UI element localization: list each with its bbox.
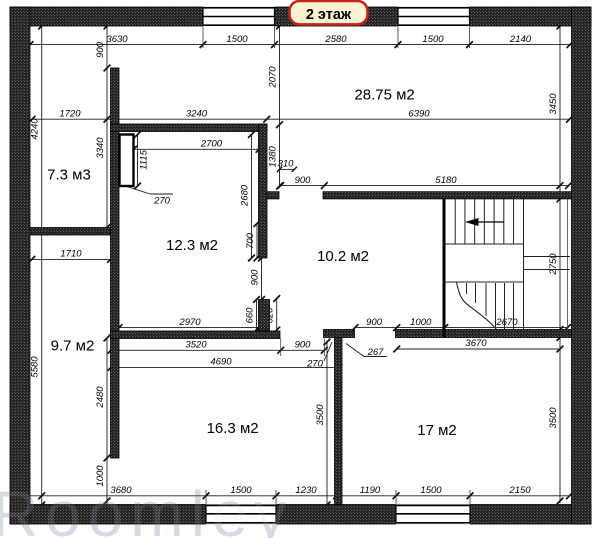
svg-text:310: 310	[278, 158, 295, 169]
svg-text:2480: 2480	[95, 386, 106, 409]
svg-text:1720: 1720	[59, 108, 81, 119]
svg-text:12.3 м2: 12.3 м2	[166, 237, 218, 254]
svg-text:17 м2: 17 м2	[417, 422, 457, 439]
svg-text:3450: 3450	[548, 93, 559, 115]
svg-text:3500: 3500	[548, 407, 559, 429]
svg-text:660: 660	[245, 307, 256, 324]
svg-text:3500: 3500	[315, 404, 326, 426]
svg-text:3340: 3340	[95, 137, 106, 159]
svg-text:2680: 2680	[240, 184, 251, 207]
svg-text:3670: 3670	[465, 338, 487, 349]
svg-text:900: 900	[295, 340, 312, 351]
svg-text:267: 267	[367, 347, 385, 358]
svg-text:2150: 2150	[508, 485, 531, 496]
svg-text:3630: 3630	[106, 34, 128, 45]
svg-text:6390: 6390	[408, 108, 430, 119]
svg-text:2970: 2970	[178, 317, 201, 328]
svg-text:1190: 1190	[360, 485, 381, 496]
svg-text:2700: 2700	[200, 139, 223, 150]
svg-text:3520: 3520	[185, 340, 207, 351]
svg-text:270: 270	[153, 196, 171, 207]
svg-text:1500: 1500	[226, 34, 248, 45]
svg-text:1000: 1000	[410, 317, 432, 328]
svg-text:28.75 м2: 28.75 м2	[354, 87, 414, 104]
svg-text:4690: 4690	[210, 357, 232, 368]
svg-text:16.3 м2: 16.3 м2	[207, 420, 259, 437]
svg-text:1710: 1710	[60, 249, 82, 260]
svg-text:9.7 м2: 9.7 м2	[51, 337, 95, 354]
svg-text:2070: 2070	[268, 66, 279, 89]
svg-text:5180: 5180	[435, 175, 457, 186]
svg-text:7.3 м3: 7.3 м3	[47, 167, 91, 184]
svg-text:1230: 1230	[295, 485, 317, 496]
svg-text:5580: 5580	[30, 356, 41, 378]
svg-text:900: 900	[95, 41, 106, 58]
svg-text:900: 900	[366, 317, 383, 328]
svg-text:1500: 1500	[420, 485, 442, 496]
svg-text:4240: 4240	[30, 118, 41, 140]
svg-text:2580: 2580	[324, 34, 347, 45]
svg-text:700: 700	[245, 232, 256, 249]
svg-text:3240: 3240	[186, 108, 208, 119]
svg-text:900: 900	[295, 175, 312, 186]
svg-text:2670: 2670	[495, 317, 518, 328]
svg-text:270: 270	[306, 359, 324, 370]
svg-text:10.2 м2: 10.2 м2	[317, 248, 369, 265]
svg-text:900: 900	[250, 269, 261, 286]
svg-text:1500: 1500	[422, 34, 444, 45]
svg-text:2 этаж: 2 этаж	[306, 7, 352, 23]
svg-text:2140: 2140	[509, 34, 532, 45]
svg-text:Roomley: Roomley	[0, 478, 294, 538]
svg-text:1115: 1115	[139, 149, 150, 169]
